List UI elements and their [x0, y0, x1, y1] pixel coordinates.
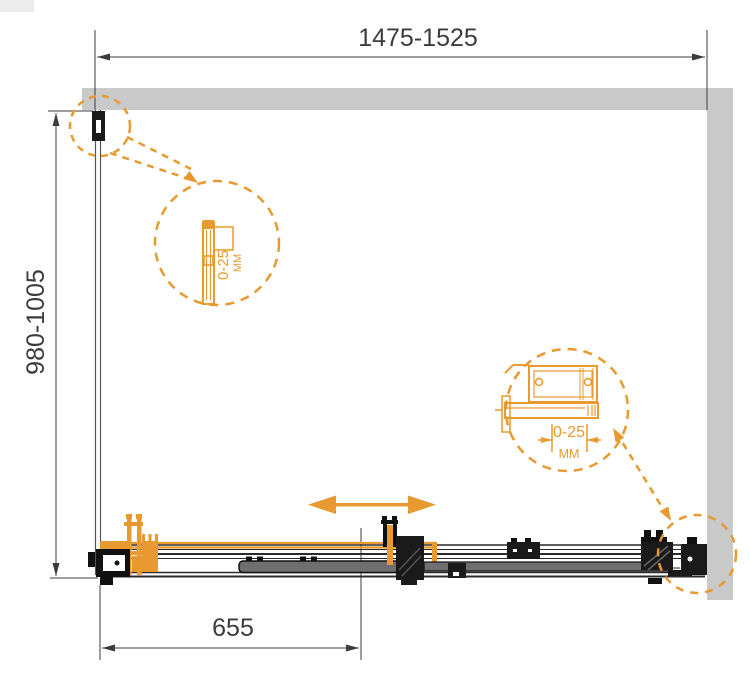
right-wall — [707, 88, 733, 600]
carriage-foot — [401, 579, 417, 585]
guide-block-notch — [145, 534, 149, 541]
wall-tab — [88, 552, 95, 567]
callout-line — [616, 432, 668, 517]
panel-clip — [300, 557, 306, 562]
arrowhead — [97, 54, 110, 61]
arrow-shaft — [330, 503, 414, 507]
top-wall — [82, 88, 733, 110]
carriage-bar — [383, 521, 387, 547]
panel-clip — [311, 557, 317, 562]
walls — [82, 88, 733, 600]
guide-block — [142, 534, 158, 572]
lower-bracket-slot — [453, 572, 459, 576]
carriage-foot — [648, 578, 662, 584]
door-offset-label: 655 — [212, 614, 254, 642]
shower-enclosure-diagram: 1475-1525 980-1005 655 — [0, 0, 750, 680]
detail-right-unit-label: ММ — [559, 447, 580, 461]
callout-arrowhead — [660, 506, 676, 523]
arrowhead — [346, 645, 359, 652]
arrowhead — [102, 645, 115, 652]
guide-block-notch — [152, 534, 156, 541]
cap-slot — [103, 555, 125, 571]
height-dimension-label: 980-1005 — [22, 269, 50, 375]
callout-line — [110, 153, 186, 178]
carriage-orange-insert — [387, 525, 393, 565]
arrowhead — [53, 563, 60, 576]
detail-left-unit-label: ММ — [232, 254, 244, 272]
roller-bracket — [507, 538, 540, 559]
cap-foot — [100, 576, 113, 585]
left-end-cap — [88, 549, 130, 585]
bracket-knob — [687, 537, 697, 545]
carriage-crossbar — [641, 537, 667, 542]
arrowhead — [53, 113, 60, 126]
center-carriage — [381, 516, 466, 585]
bracket-screw — [688, 557, 693, 562]
mech-edge — [505, 365, 513, 373]
detail-zoom-circle — [155, 181, 279, 305]
roller-body — [507, 542, 540, 559]
left-wall-profile — [92, 110, 105, 575]
bracket-step — [668, 570, 692, 576]
right-wall-bracket — [668, 537, 707, 576]
arrow-head-left — [308, 496, 336, 515]
wall-bracket-highlight — [100, 541, 131, 550]
ladder-crossbar — [124, 522, 143, 526]
width-dimension-label: 1475-1525 — [358, 24, 478, 52]
height-dimension — [48, 111, 98, 578]
watermark-artifact — [0, 0, 34, 12]
panel-clip — [246, 557, 252, 562]
top-fitting-slot — [96, 120, 101, 133]
door-assembly — [88, 514, 707, 585]
roller-screw — [513, 549, 517, 552]
arrowhead — [692, 54, 705, 61]
guide-block-foot — [132, 556, 142, 572]
panel-clip — [257, 557, 263, 562]
technical-drawing: 1475-1525 980-1005 655 — [0, 0, 750, 680]
detail-right-range-label: 0-25 — [553, 424, 585, 441]
panel-bar — [239, 561, 409, 573]
slide-direction-arrow — [308, 496, 436, 515]
cap-screw — [115, 561, 120, 566]
detail-left-range-label: 0-25 — [215, 250, 232, 280]
roller-screw — [528, 549, 532, 552]
arrow-head-right — [408, 496, 436, 515]
callout-line — [127, 137, 191, 169]
